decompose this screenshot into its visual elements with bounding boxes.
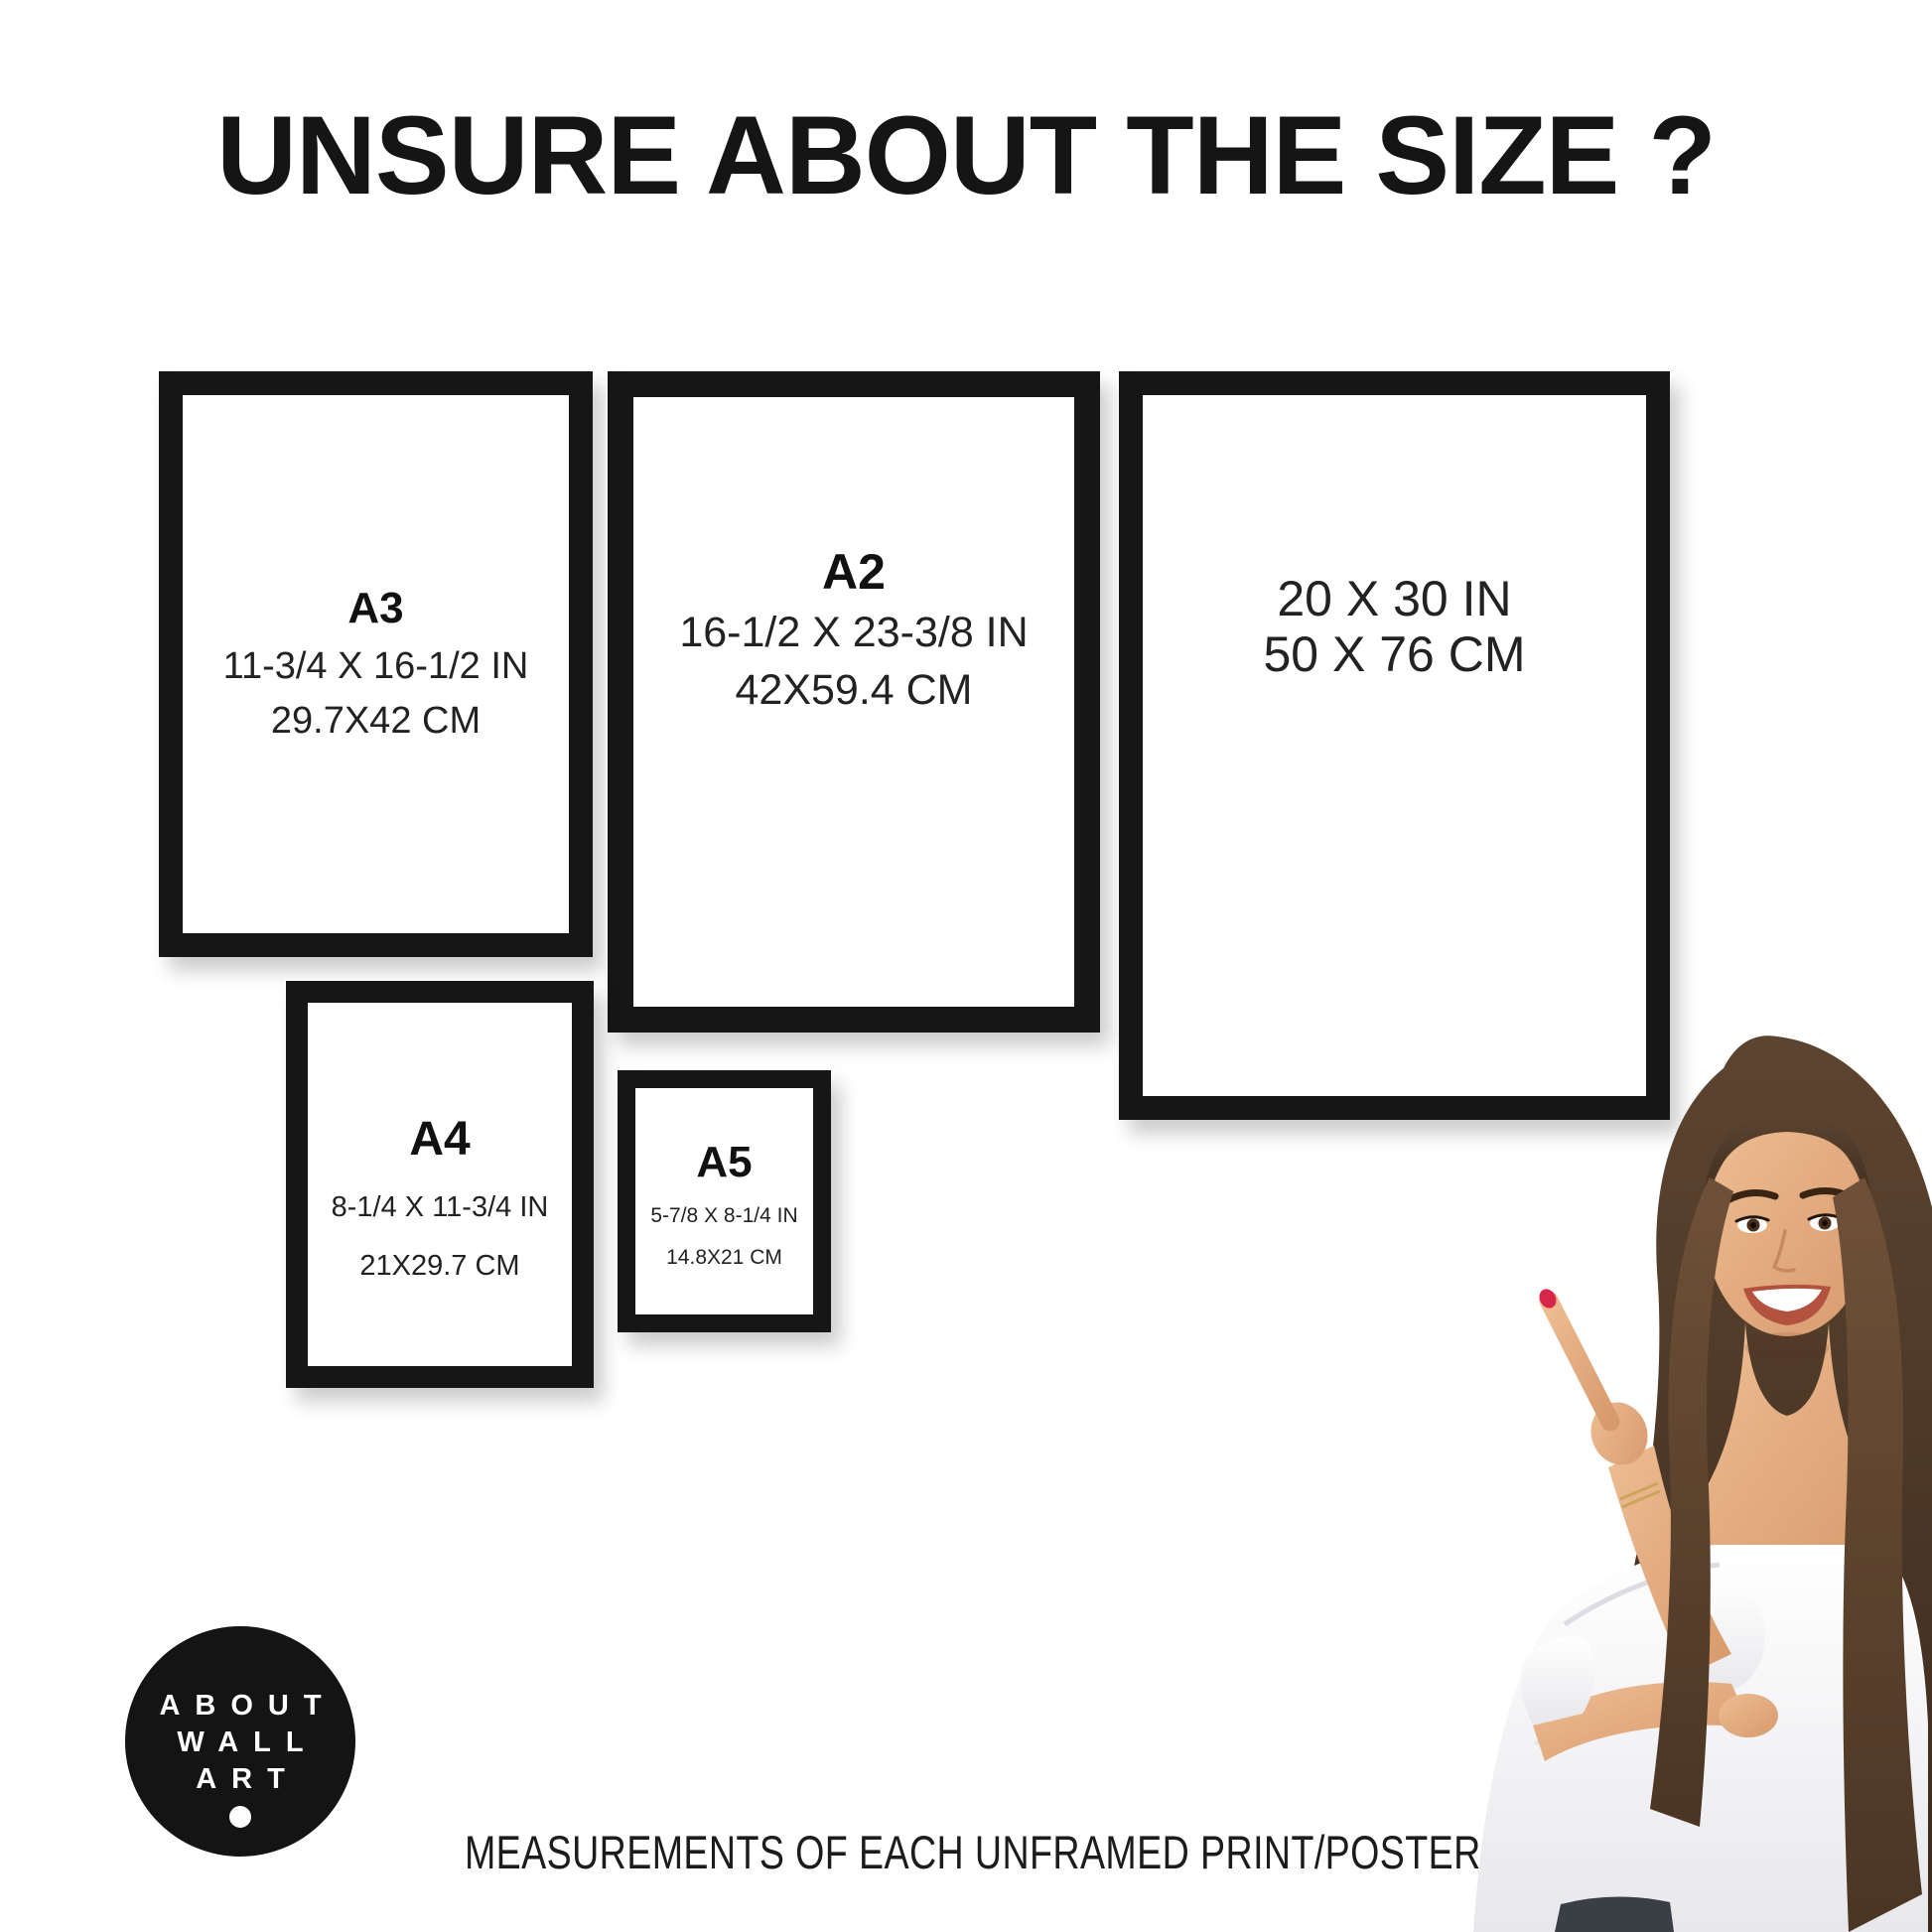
frame-a5-text: A5 5-7/8 X 8-1/4 IN 14.8X21 CM bbox=[635, 1141, 813, 1268]
frame-a2-inches: 16-1/2 X 23-3/8 IN bbox=[633, 612, 1074, 654]
jeans bbox=[1555, 1896, 1674, 1932]
frame-a3: A3 11-3/4 X 16-1/2 IN 29.7X42 CM bbox=[159, 371, 593, 957]
frame-20x30-inches: 20 X 30 IN bbox=[1143, 574, 1646, 623]
frame-a5: A5 5-7/8 X 8-1/4 IN 14.8X21 CM bbox=[618, 1070, 831, 1332]
frame-a3-label: A3 bbox=[183, 587, 569, 630]
frame-a3-cm: 29.7X42 CM bbox=[183, 702, 569, 740]
frame-20x30-text: 20 X 30 IN 50 X 76 CM bbox=[1143, 574, 1646, 679]
caption-text: MEASUREMENTS OF EACH UNFRAMED PRINT/POST… bbox=[465, 1825, 1481, 1879]
index-finger bbox=[1549, 1301, 1610, 1422]
frame-a5-cm: 14.8X21 CM bbox=[635, 1247, 813, 1268]
frame-a5-label: A5 bbox=[635, 1141, 813, 1184]
frame-a4-cm: 21X29.7 CM bbox=[308, 1252, 572, 1281]
frame-20x30: 20 X 30 IN 50 X 76 CM bbox=[1119, 371, 1670, 1120]
frame-a2-text: A2 16-1/2 X 23-3/8 IN 42X59.4 CM bbox=[633, 547, 1074, 712]
brand-logo-line1: ABOUT bbox=[125, 1688, 355, 1725]
frame-a4-text: A4 8-1/4 X 11-3/4 IN 21X29.7 CM bbox=[308, 1116, 572, 1281]
caption: MEASUREMENTS OF EACH UNFRAMED PRINT/POST… bbox=[338, 1825, 1440, 1879]
size-guide-infographic: UNSURE ABOUT THE SIZE ? A3 11-3/4 X 16-1… bbox=[0, 0, 1932, 1932]
brand-logo: ABOUT WALL ART bbox=[125, 1626, 355, 1857]
frame-20x30-cm: 50 X 76 CM bbox=[1143, 629, 1646, 679]
frame-a2-label: A2 bbox=[633, 547, 1074, 597]
frame-a2-cm: 42X59.4 CM bbox=[633, 669, 1074, 712]
frame-a2: A2 16-1/2 X 23-3/8 IN 42X59.4 CM bbox=[608, 371, 1100, 1033]
brand-logo-dot-icon bbox=[229, 1806, 251, 1828]
frame-a3-inches: 11-3/4 X 16-1/2 IN bbox=[183, 647, 569, 685]
page-title: UNSURE ABOUT THE SIZE ? bbox=[0, 91, 1932, 219]
frame-a4-inches: 8-1/4 X 11-3/4 IN bbox=[308, 1193, 572, 1222]
brand-logo-line2: WALL bbox=[125, 1725, 355, 1761]
frame-a4: A4 8-1/4 X 11-3/4 IN 21X29.7 CM bbox=[286, 981, 594, 1388]
frame-a3-text: A3 11-3/4 X 16-1/2 IN 29.7X42 CM bbox=[183, 587, 569, 740]
brand-logo-line3: ART bbox=[125, 1761, 355, 1798]
frame-a5-inches: 5-7/8 X 8-1/4 IN bbox=[635, 1205, 813, 1226]
frame-a4-label: A4 bbox=[308, 1116, 572, 1164]
model-photo bbox=[1416, 1029, 1932, 1932]
